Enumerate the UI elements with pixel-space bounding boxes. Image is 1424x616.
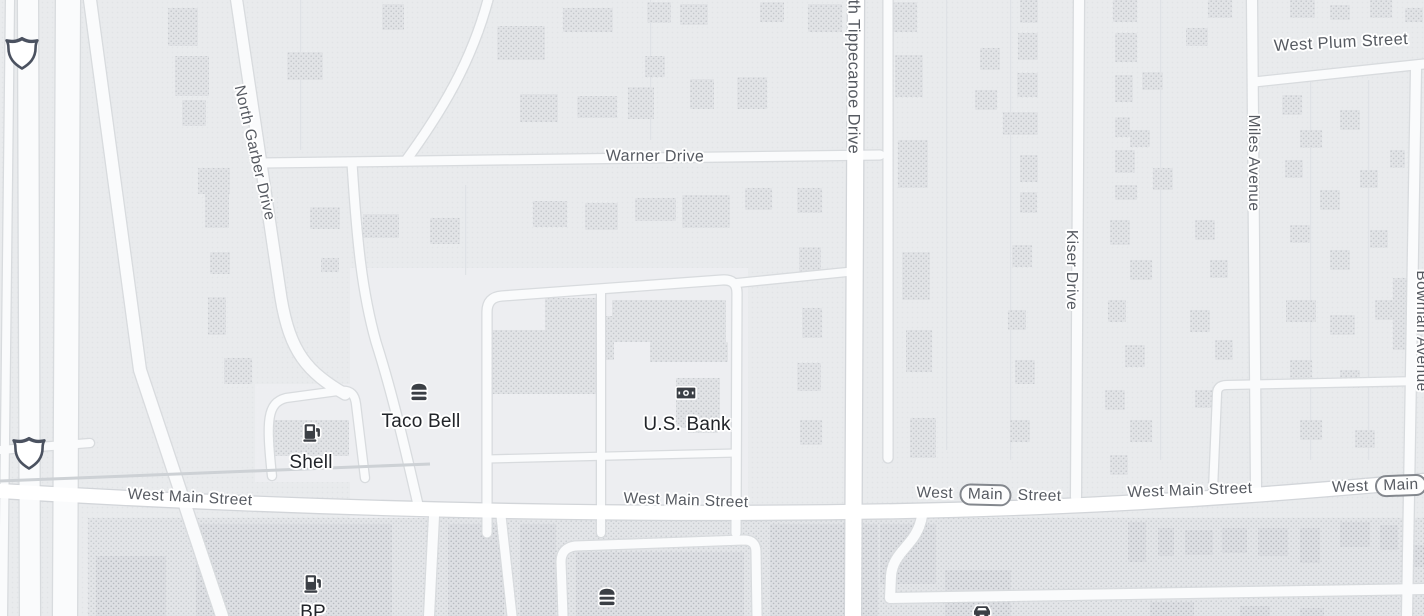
restaurant-icon[interactable] (406, 378, 432, 404)
street-label: West Main Street (623, 490, 749, 512)
interstate-shield (5, 34, 39, 70)
street-label: North Tippecanoe Drive (844, 0, 863, 154)
street-label: West Main Street (916, 482, 1062, 508)
street-label: West Main Street (1127, 480, 1253, 502)
poi-label[interactable]: Taco Bell (382, 411, 461, 433)
route-badge: Main (960, 483, 1012, 506)
fuel-icon[interactable] (299, 419, 325, 445)
poi-label[interactable]: Shell (289, 452, 332, 474)
street-label: Bowman Avenue (1412, 270, 1424, 391)
street-label: Miles Avenue (1244, 115, 1262, 212)
poi-label[interactable]: BP (300, 602, 326, 616)
fuel-icon[interactable] (300, 570, 326, 596)
map-label-layer: North Garber DriveWarner DriveNorth Tipp… (0, 0, 1424, 616)
car-icon[interactable] (969, 597, 995, 616)
route-badge: Main (1375, 474, 1424, 498)
street-label: Kiser Drive (1062, 230, 1080, 310)
street-label: Warner Drive (606, 148, 705, 167)
street-label: North Garber Drive (230, 84, 279, 223)
interstate-shield (12, 434, 46, 470)
map-canvas[interactable]: North Garber DriveWarner DriveNorth Tipp… (0, 0, 1424, 616)
bank-icon[interactable] (673, 380, 699, 406)
street-label: West Main S (1332, 473, 1424, 499)
poi-label[interactable]: U.S. Bank (643, 414, 730, 436)
restaurant-icon[interactable] (594, 583, 620, 609)
street-label: West Plum Street (1273, 30, 1408, 56)
street-label-part: West (916, 484, 953, 502)
street-label-part: Street (1018, 487, 1062, 505)
street-label: West Main Street (127, 486, 253, 511)
street-label-part: West (1332, 478, 1369, 496)
